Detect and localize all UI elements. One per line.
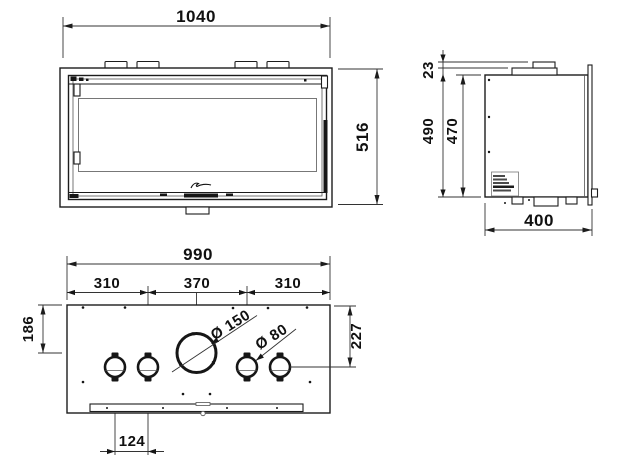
hole-dot xyxy=(182,393,185,396)
hinge xyxy=(74,84,80,96)
screw-dot xyxy=(488,116,490,118)
door-handle-strip xyxy=(324,120,328,193)
flue-step xyxy=(512,68,557,75)
flue-collar xyxy=(533,62,555,68)
front-frame-lip xyxy=(588,65,592,205)
flue-notch xyxy=(212,361,215,364)
foot xyxy=(512,197,523,204)
door-corner-bracket xyxy=(322,76,328,88)
rail-notch xyxy=(196,403,210,406)
latch-detail-icon xyxy=(86,79,89,82)
screw-dot xyxy=(488,79,490,81)
screw-dot xyxy=(488,151,490,153)
spigot-clip xyxy=(145,353,152,358)
corner-detail xyxy=(70,194,79,198)
duct-spigot xyxy=(270,357,290,377)
dim-plan-depth-left: 186 xyxy=(20,316,37,343)
rail-center-fixing xyxy=(201,411,205,415)
label-text-line xyxy=(493,190,511,192)
duct-spigot xyxy=(237,357,257,377)
hole-dot xyxy=(309,381,312,384)
hole-dot xyxy=(306,306,309,309)
vent-slot xyxy=(226,194,233,197)
foot xyxy=(566,197,577,204)
dim-plan-right: 310 xyxy=(275,275,302,292)
hole-dot xyxy=(267,307,270,310)
spigot-clip xyxy=(277,377,284,382)
hole-dot xyxy=(232,307,235,310)
hole-dot xyxy=(82,381,85,384)
air-control-bar xyxy=(184,194,218,198)
flue-opening xyxy=(177,334,216,373)
hole-dot xyxy=(124,306,127,309)
dim-front-width: 1040 xyxy=(176,7,216,26)
dim-plan-width: 990 xyxy=(183,245,213,264)
duct-spigot xyxy=(105,357,125,377)
label-text-line xyxy=(493,186,514,189)
technical-drawing: 1040 516 xyxy=(0,0,624,460)
spigot-clip xyxy=(112,377,119,382)
dim-side-depth: 400 xyxy=(524,211,554,230)
dim-plan-center: 370 xyxy=(184,275,211,292)
dim-plan-left: 310 xyxy=(94,275,121,292)
hole-dot xyxy=(209,393,212,396)
dim-side-height-overall: 490 xyxy=(420,118,437,145)
dim-front-height: 516 xyxy=(353,122,372,152)
screw-dot xyxy=(504,202,506,204)
hinge xyxy=(74,152,80,164)
hole-dot xyxy=(226,407,228,409)
latch-detail-icon xyxy=(71,77,77,82)
spigot-clip xyxy=(277,353,284,358)
bottom-bracket xyxy=(592,189,598,197)
spigot-clip xyxy=(244,377,251,382)
rating-label xyxy=(492,172,519,196)
label-text-line xyxy=(493,182,509,184)
spigot-clip xyxy=(112,353,119,358)
duct-spigot xyxy=(138,357,158,377)
dim-side-height-body: 470 xyxy=(444,118,461,145)
dim-duct-spacing: 124 xyxy=(119,433,146,450)
label-text-line xyxy=(493,179,507,181)
screw-dot xyxy=(528,199,530,201)
fixing-dot xyxy=(304,79,307,82)
spigot-clip xyxy=(145,377,152,382)
flue-notch xyxy=(192,332,195,335)
hole-dot xyxy=(106,407,108,409)
bottom-recess-tab xyxy=(534,197,558,206)
vent-slot xyxy=(160,194,167,197)
drawing-page: 1040 516 xyxy=(0,0,624,460)
dim-plan-depth-right: 227 xyxy=(348,323,365,350)
spigot-clip xyxy=(244,353,251,358)
hole-dot xyxy=(276,407,278,409)
latch-detail-icon xyxy=(79,78,84,82)
hole-dot xyxy=(162,407,164,409)
hole-dot xyxy=(82,306,85,309)
bottom-tab xyxy=(186,207,209,214)
label-text-line xyxy=(493,175,505,177)
dim-side-flue-offset: 23 xyxy=(420,61,437,79)
